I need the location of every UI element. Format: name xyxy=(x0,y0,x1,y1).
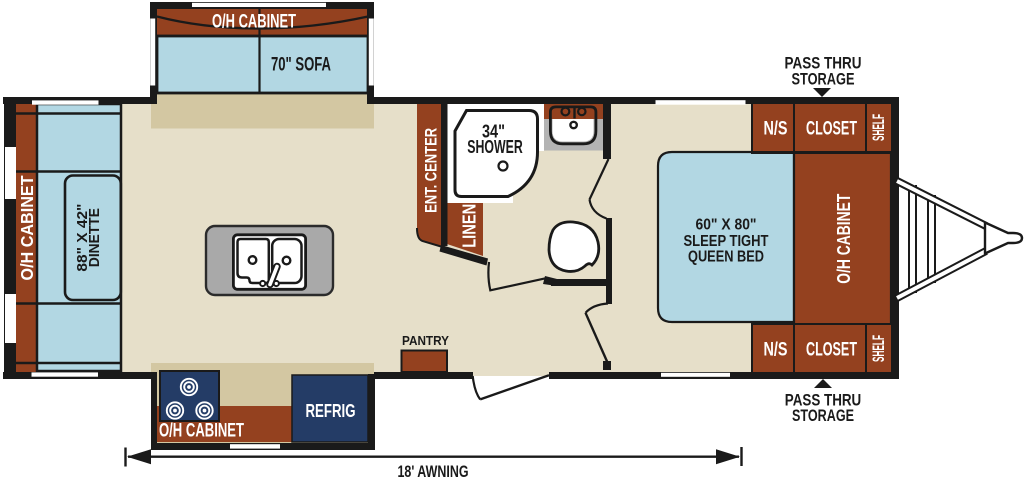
svg-text:N/S: N/S xyxy=(764,339,788,360)
svg-text:SHELF: SHELF xyxy=(869,114,888,141)
svg-text:QUEEN BED: QUEEN BED xyxy=(688,249,764,266)
svg-text:60" X 80": 60" X 80" xyxy=(696,217,757,234)
svg-text:SHELF: SHELF xyxy=(869,335,888,362)
svg-text:PANTRY: PANTRY xyxy=(402,333,449,348)
svg-text:CLOSET: CLOSET xyxy=(806,118,857,139)
svg-text:O/H CABINET: O/H CABINET xyxy=(17,175,37,280)
svg-text:CLOSET: CLOSET xyxy=(806,339,857,360)
svg-text:REFRIG: REFRIG xyxy=(306,400,356,421)
svg-text:18' AWNING: 18' AWNING xyxy=(398,463,469,477)
svg-text:DINETTE: DINETTE xyxy=(86,208,103,267)
svg-text:SLEEP TIGHT: SLEEP TIGHT xyxy=(684,233,769,250)
svg-text:70" SOFA: 70" SOFA xyxy=(271,54,331,76)
svg-text:ENT. CENTER: ENT. CENTER xyxy=(421,128,440,213)
svg-text:LINEN: LINEN xyxy=(459,204,480,248)
svg-text:O/H CABINET: O/H CABINET xyxy=(159,421,244,442)
svg-text:O/H CABINET: O/H CABINET xyxy=(212,12,296,33)
svg-text:STORAGE: STORAGE xyxy=(792,70,855,89)
svg-text:O/H CABINET: O/H CABINET xyxy=(833,193,854,284)
svg-text:N/S: N/S xyxy=(764,118,788,139)
svg-text:STORAGE: STORAGE xyxy=(792,407,854,425)
svg-text:SHOWER: SHOWER xyxy=(467,136,523,157)
